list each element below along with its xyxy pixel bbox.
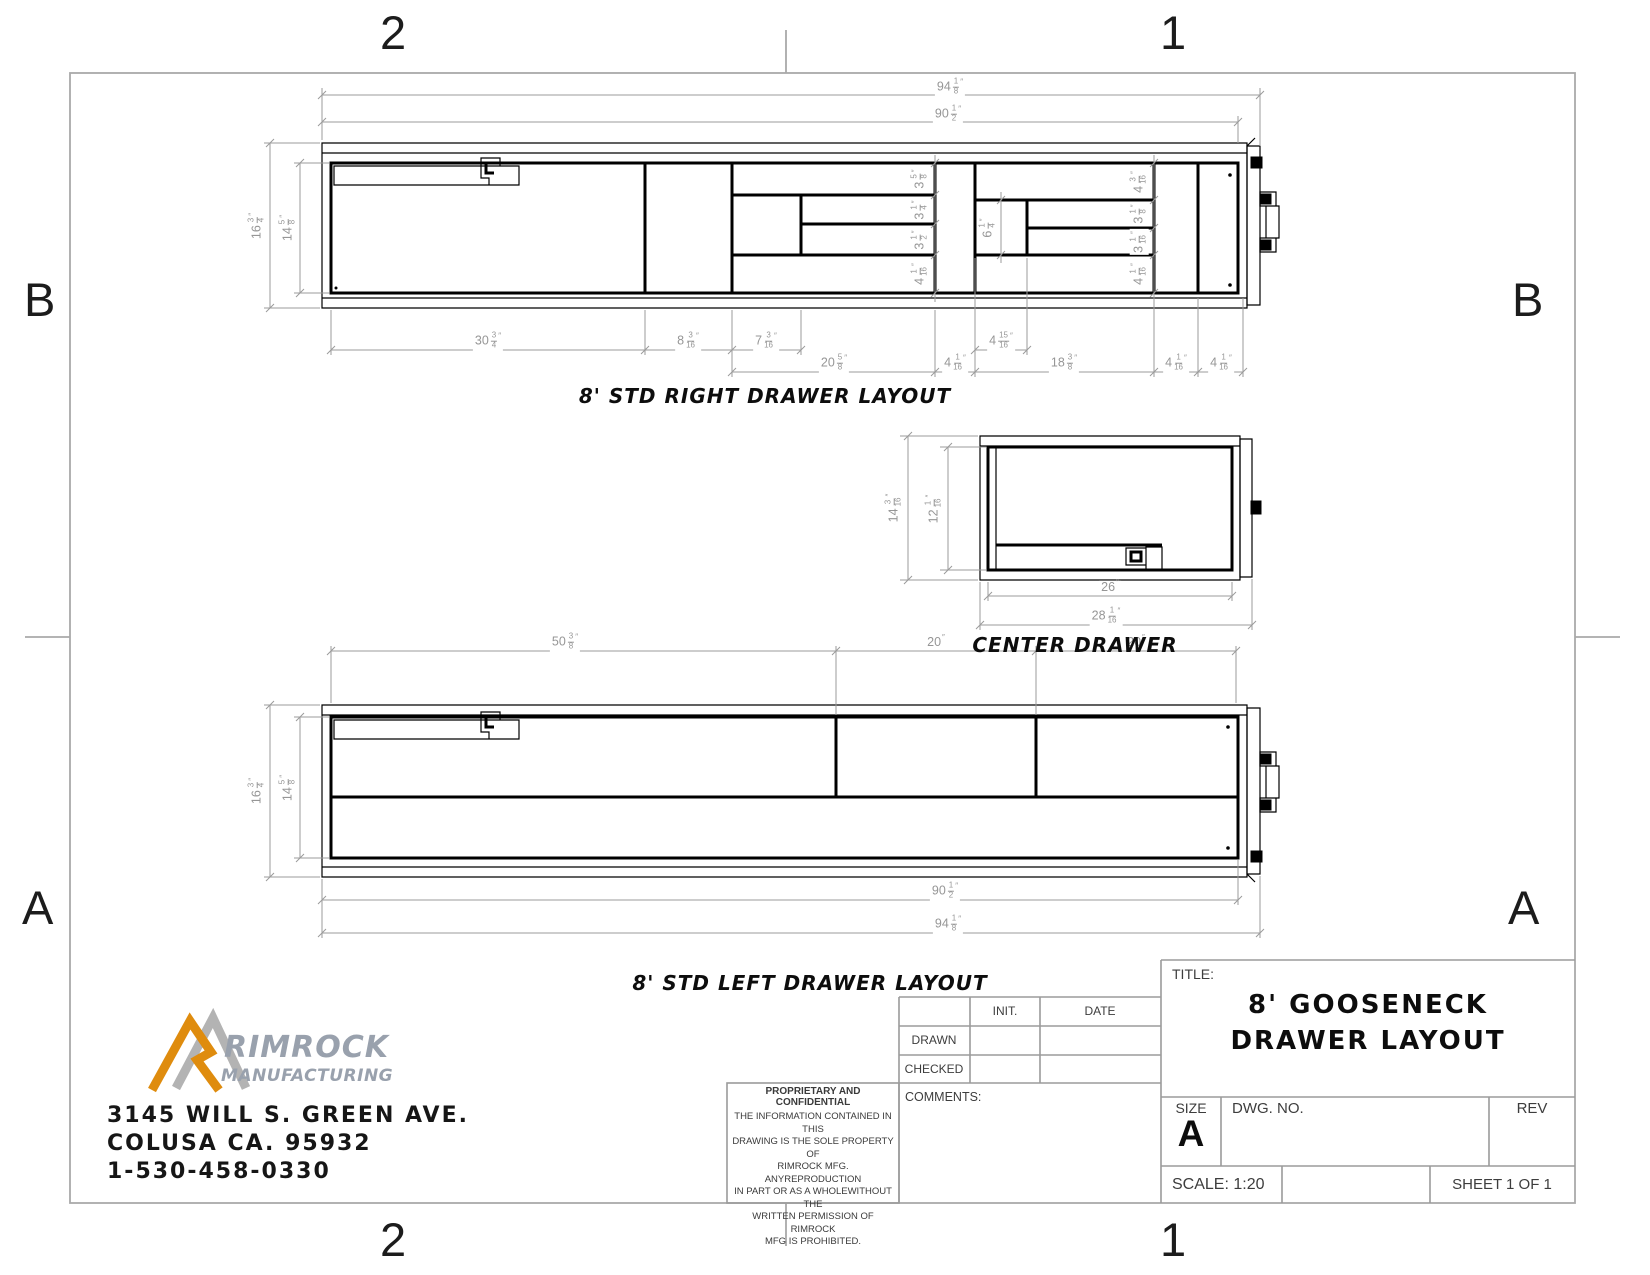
dim-right-stack-right-4: 4116″ [1130, 261, 1149, 287]
zone-bottom-right: 1 [1160, 1212, 1186, 1267]
dim-right-stack-mid-1: 358″ [911, 167, 930, 190]
proprietary-line: WRITTEN PERMISSION OF RIMROCK [729, 1211, 897, 1236]
zone-right-lower: A [1508, 880, 1539, 935]
dim-right-stack-right-3: 3116″ [1130, 229, 1149, 255]
company-name-secondary: MANUFACTURING [221, 1066, 393, 1086]
dim-center-inner-width: 26″ [1099, 581, 1121, 594]
dim-right-stack-mid-3: 312″ [911, 228, 930, 251]
dim-right-row2-4: 4116″ [1163, 354, 1189, 373]
company-phone: 1-530-458-0330 [107, 1159, 331, 1184]
dim-right-row1-1: 3034″ [473, 332, 503, 351]
dim-right-row2-1: 2058″ [819, 354, 849, 373]
dim-right-row2-5: 4116″ [1208, 354, 1234, 373]
init-column-header: INIT. [993, 1004, 1018, 1018]
company-name: RIMROCK [224, 1030, 389, 1065]
dim-left-overall-width: 9418″ [933, 915, 963, 934]
left-layout-title: 8' STD LEFT DRAWER LAYOUT [632, 971, 987, 995]
proprietary-heading: PROPRIETARY AND CONFIDENTIAL [729, 1086, 897, 1108]
center-drawer-thick [988, 447, 1260, 570]
zone-right-upper: B [1512, 272, 1543, 327]
dwg-no-label: DWG. NO. [1232, 1100, 1304, 1117]
zone-left-lower: A [22, 880, 53, 935]
dim-left-top-1: 5038″ [550, 633, 580, 652]
sheet-label: SHEET 1 OF 1 [1452, 1176, 1552, 1193]
proprietary-line: IN PART OR AS A WHOLEWITHOUT THE [729, 1186, 897, 1211]
dim-right-stack-right-1: 4316″ [1130, 169, 1149, 195]
dim-right-row2-3: 1838″ [1049, 354, 1079, 373]
dim-right-overall-width: 9418″ [935, 78, 965, 97]
dim-center-inner-height: 12116″ [925, 493, 944, 526]
center-drawer-title: CENTER DRAWER [972, 633, 1177, 657]
dim-right-stack-mid-2: 314″ [911, 198, 930, 221]
comments-label: COMMENTS: [905, 1090, 981, 1104]
company-address-line1: 3145 WILL S. GREEN AVE. [107, 1103, 469, 1128]
dim-left-inner-width: 9012″ [930, 882, 960, 901]
title-label: TITLE: [1172, 966, 1214, 982]
zone-left-upper: B [24, 272, 55, 327]
dim-right-row1-3: 7316″ [753, 332, 779, 351]
dim-right-stack-mid-4: 4116″ [911, 261, 930, 287]
scale-label: SCALE: 1:20 [1172, 1176, 1265, 1194]
drawing-sheet: 2 1 B B A A 2 1 9418″ 9012″ 1634″ 1458″ … [0, 0, 1650, 1275]
right-layout-title: 8' STD RIGHT DRAWER LAYOUT [579, 384, 951, 408]
date-column-header: DATE [1084, 1004, 1115, 1018]
left-layout-dots [1226, 725, 1230, 850]
dim-right-cell-height: 614″ [979, 216, 998, 239]
proprietary-line: MFG IS PROHIBITED. [729, 1236, 897, 1249]
dim-right-inner-height: 1458″ [279, 213, 298, 243]
sheet-title-line2: DRAWER LAYOUT [1230, 1026, 1505, 1056]
proprietary-note: PROPRIETARY AND CONFIDENTIAL THE INFORMA… [729, 1086, 897, 1249]
zone-top-right: 1 [1160, 5, 1186, 60]
dim-right-stack-right-2: 318″ [1130, 202, 1149, 225]
proprietary-line: RIMROCK MFG. ANYREPRODUCTION [729, 1161, 897, 1186]
proprietary-line: THE INFORMATION CONTAINED IN THIS [729, 1111, 897, 1136]
dim-left-overall-height: 1634″ [248, 776, 267, 806]
dim-left-top-2: 20″ [925, 636, 947, 649]
dim-right-row1-4: 41516″ [987, 332, 1015, 351]
dim-right-row1-2: 8316″ [675, 332, 701, 351]
center-drawer-thin [980, 436, 1252, 580]
zone-bottom-left: 2 [380, 1212, 406, 1267]
company-address-line2: COLUSA CA. 95932 [107, 1131, 372, 1156]
dim-right-inner-width: 9012″ [933, 105, 963, 124]
sheet-title-line1: 8' GOOSENECK [1248, 990, 1488, 1020]
dim-right-overall-height: 1634″ [248, 211, 267, 241]
right-layout-dots [335, 173, 1232, 289]
drawn-row-label: DRAWN [912, 1033, 957, 1047]
dim-left-inner-height: 1458″ [279, 773, 298, 803]
checked-row-label: CHECKED [905, 1062, 964, 1076]
dim-center-overall-height: 14316″ [885, 492, 904, 525]
size-value: A [1178, 1113, 1205, 1155]
dimension-lines [264, 88, 1264, 938]
dim-center-overall-width: 28116″ [1090, 607, 1123, 626]
dim-right-row2-2: 4116″ [942, 354, 968, 373]
zone-top-left: 2 [380, 5, 406, 60]
left-layout-thin [322, 705, 1279, 882]
rev-label: REV [1517, 1100, 1548, 1117]
proprietary-line: DRAWING IS THE SOLE PROPERTY OF [729, 1136, 897, 1161]
